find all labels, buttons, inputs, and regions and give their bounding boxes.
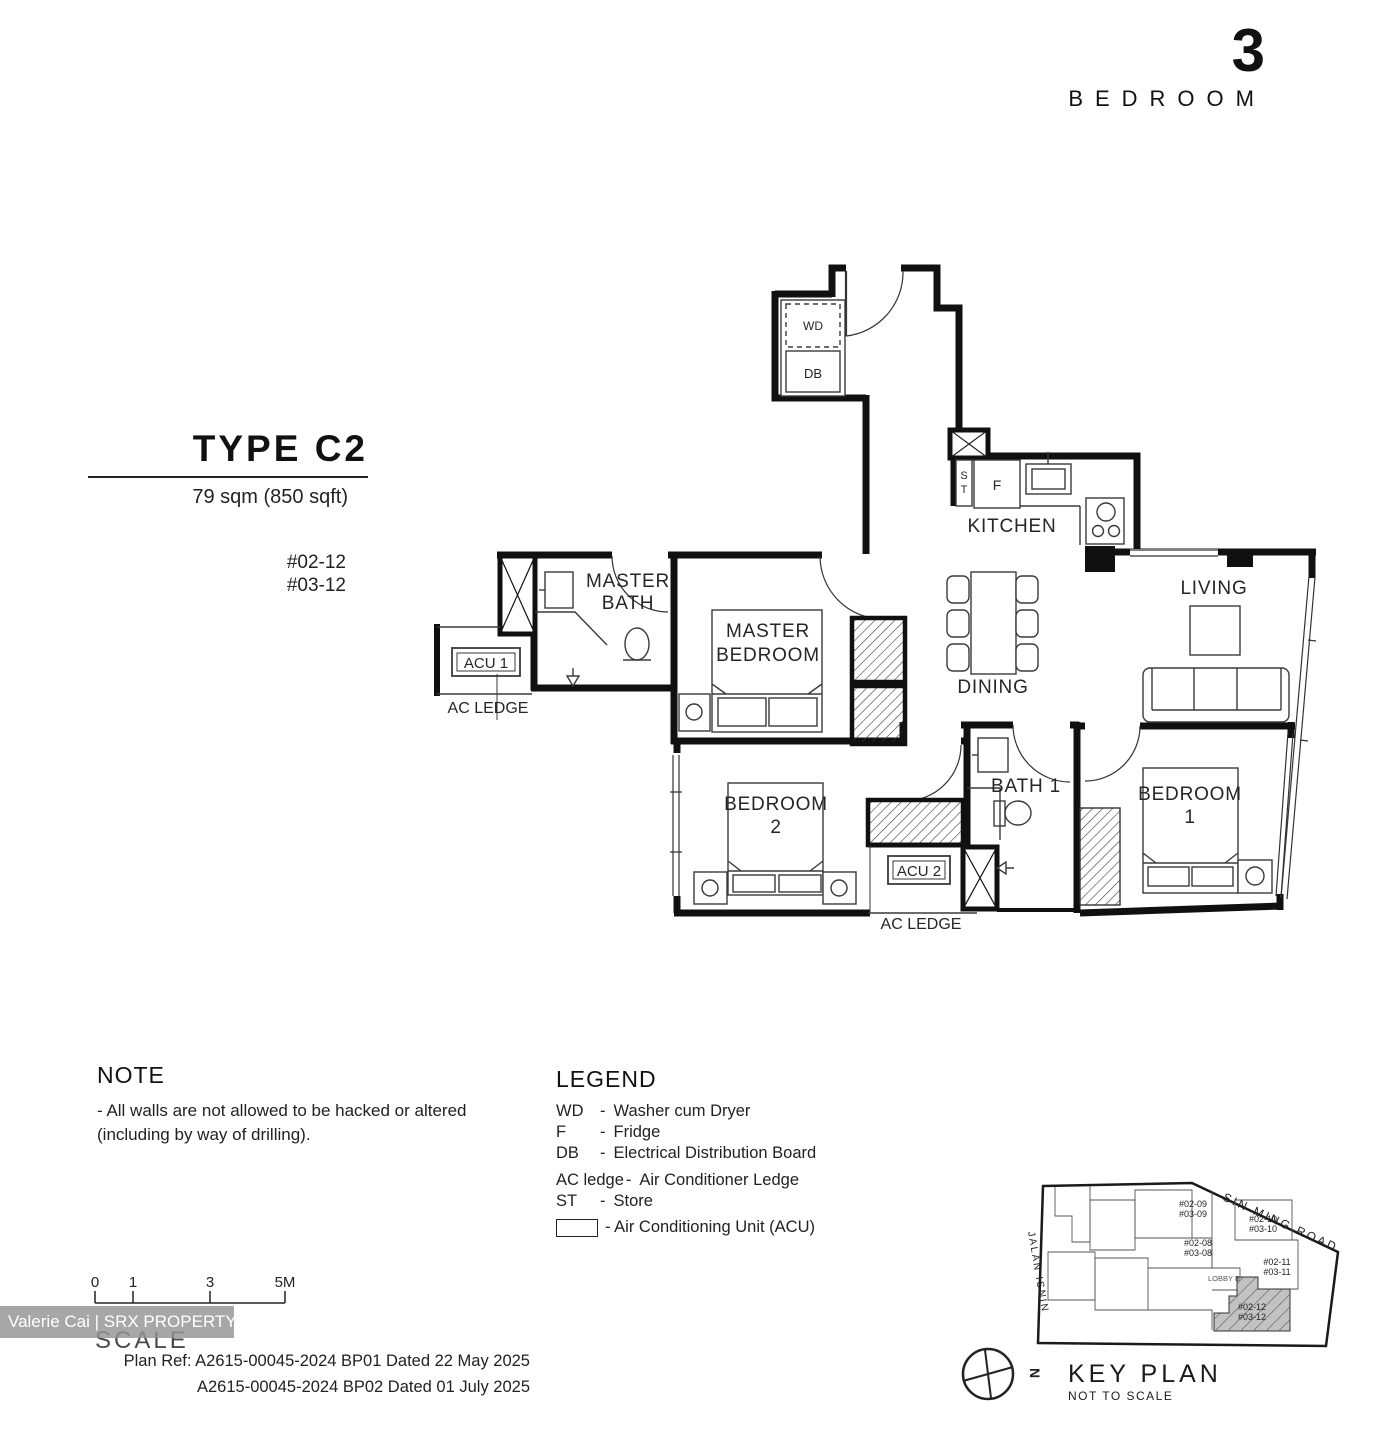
bedroom1-door-arc [1085, 726, 1140, 781]
wd-label: WD [803, 319, 823, 333]
unit-number-1: #02-12 [88, 551, 346, 574]
legend-row-db: DB - Electrical Distribution Board [556, 1143, 896, 1164]
st-label-t: T [961, 484, 968, 496]
ac-ledge-bottom-label: AC LEDGE [881, 916, 962, 933]
legend-row-st: ST - Store [556, 1191, 896, 1212]
legend-desc: Electrical Distribution Board [614, 1143, 817, 1164]
legend-abbr: DB [556, 1143, 598, 1164]
kitchen-label: KITCHEN [968, 516, 1057, 537]
acu2-label: ACU 2 [897, 863, 941, 880]
scale-3: 3 [206, 1274, 214, 1291]
legend-row-acledge: AC ledge - Air Conditioner Ledge [556, 1170, 896, 1191]
north-label: N [1027, 1368, 1043, 1378]
coffee-table [1190, 606, 1240, 655]
floor-plan-page: KITCHEN LIVING DINING MASTER BATH MASTER… [0, 0, 1388, 1440]
note-title: NOTE [97, 1062, 527, 1089]
legend-abbr: AC ledge [556, 1170, 624, 1191]
scale-5m: 5M [275, 1274, 296, 1291]
scale-1: 1 [129, 1274, 137, 1291]
legend-block: LEGEND WD - Washer cum Dryer F - Fridge … [556, 1066, 896, 1237]
keyplan-unit-09-line2: #03-09 [1179, 1209, 1207, 1219]
acu-rect-icon [556, 1219, 598, 1237]
legend-row-wd: WD - Washer cum Dryer [556, 1101, 896, 1122]
bedroom2-label-1: BEDROOM [724, 794, 828, 815]
note-block: NOTE - All walls are not allowed to be h… [97, 1062, 527, 1147]
legend-desc: Store [614, 1191, 653, 1212]
bedroom2-label-2: 2 [770, 817, 781, 838]
master-bedroom-label-1: MASTER [726, 621, 810, 642]
living-label: LIVING [1180, 578, 1247, 599]
bedroom1-label-1: BEDROOM [1138, 784, 1242, 805]
plan-ref-block: Plan Ref: A2615-00045-2024 BP01 Dated 22… [95, 1348, 530, 1400]
st-label-s: S [960, 470, 967, 482]
vent-icon [997, 862, 1014, 874]
page-header: 3 BEDROOM [1068, 22, 1266, 112]
column [1085, 546, 1115, 572]
legend-abbr: F [556, 1122, 598, 1143]
unit-area: 79 sqm (850 sqft) [88, 486, 348, 509]
dining-table [947, 572, 1038, 674]
plan-ref-line-1: Plan Ref: A2615-00045-2024 BP01 Dated 22… [95, 1348, 530, 1374]
legend-dash: - [598, 1143, 614, 1164]
keyplan-unit-11-line2: #03-11 [1263, 1267, 1290, 1277]
master-bedroom-door-arc [820, 556, 883, 619]
bedroom-count-label: BEDROOM [1068, 86, 1266, 112]
legend-desc: Fridge [614, 1122, 661, 1143]
keyplan-unit-12-line1: #02-12 [1238, 1302, 1266, 1312]
keyplan-unit-08-line1: #02-08 [1184, 1238, 1212, 1248]
entry-door-arc [846, 271, 903, 336]
bedroom1-label-2: 1 [1184, 807, 1195, 828]
scale-0: 0 [91, 1274, 99, 1291]
legend-abbr: ST [556, 1191, 598, 1212]
column-2 [1227, 552, 1253, 567]
legend-desc: Washer cum Dryer [614, 1101, 751, 1122]
unit-type-title: TYPE C2 [88, 428, 368, 478]
acu1-label: ACU 1 [464, 655, 508, 672]
note-line-1: - All walls are not allowed to be hacked… [97, 1099, 527, 1123]
sofa [1143, 668, 1289, 722]
legend-desc: Air Conditioner Ledge [639, 1170, 799, 1191]
keyplan-unit-09-line1: #02-09 [1179, 1199, 1207, 1209]
legend-title: LEGEND [556, 1066, 896, 1093]
legend-dash: - [598, 1191, 614, 1212]
type-block: TYPE C2 79 sqm (850 sqft) #02-12 #03-12 [88, 428, 368, 597]
bedroom2-door-arc [905, 745, 961, 801]
key-plan-title: KEY PLAN [1068, 1360, 1222, 1388]
master-bedroom-label-2: BEDROOM [716, 645, 820, 666]
watermark: Valerie Cai | SRX PROPERTY [0, 1306, 234, 1338]
bath1-label: BATH 1 [991, 776, 1061, 797]
unit-number-2: #03-12 [88, 574, 346, 597]
master-bath-label-2: BATH [602, 593, 654, 614]
bath1-door-arc [1013, 725, 1070, 782]
key-plan: #02-09 #03-09 #02-10 #03-10 #02-08 #03-0… [963, 1183, 1340, 1403]
legend-dash: - [598, 1101, 614, 1122]
keyplan-unit-08-line2: #03-08 [1184, 1248, 1212, 1258]
road-jalan-isnin-label: JALAN ISNIN [1025, 1231, 1050, 1314]
scale-bar [95, 1291, 285, 1303]
legend-dash: - [598, 1122, 614, 1143]
legend-acu-desc: - Air Conditioning Unit (ACU) [605, 1218, 815, 1237]
legend-dash: - [624, 1170, 640, 1191]
key-plan-subtitle: NOT TO SCALE [1068, 1389, 1173, 1403]
dining-label: DINING [957, 677, 1028, 698]
legend-abbr: WD [556, 1101, 598, 1122]
plan-ref-line-2: A2615-00045-2024 BP02 Dated 01 July 2025 [95, 1374, 530, 1400]
unit-numbers: #02-12 #03-12 [88, 551, 346, 597]
db-label: DB [804, 366, 822, 381]
legend-row-f: F - Fridge [556, 1122, 896, 1143]
entry-closet [781, 300, 845, 396]
ac-ledge-left-label: AC LEDGE [448, 700, 529, 717]
keyplan-unit-11-line1: #02-11 [1263, 1257, 1290, 1267]
keyplan-lobby-label: LOBBY B [1208, 1274, 1240, 1283]
fridge-label: F [993, 477, 1002, 493]
keyplan-unit-12-line2: #03-12 [1238, 1312, 1266, 1322]
master-bath-label-1: MASTER [586, 571, 670, 592]
bedroom-count: 3 [1068, 22, 1266, 80]
legend-row-acu: - Air Conditioning Unit (ACU) [556, 1218, 896, 1237]
north-arrow-icon [963, 1349, 1013, 1399]
furniture [437, 300, 1289, 913]
note-line-2: (including by way of drilling). [97, 1123, 527, 1147]
